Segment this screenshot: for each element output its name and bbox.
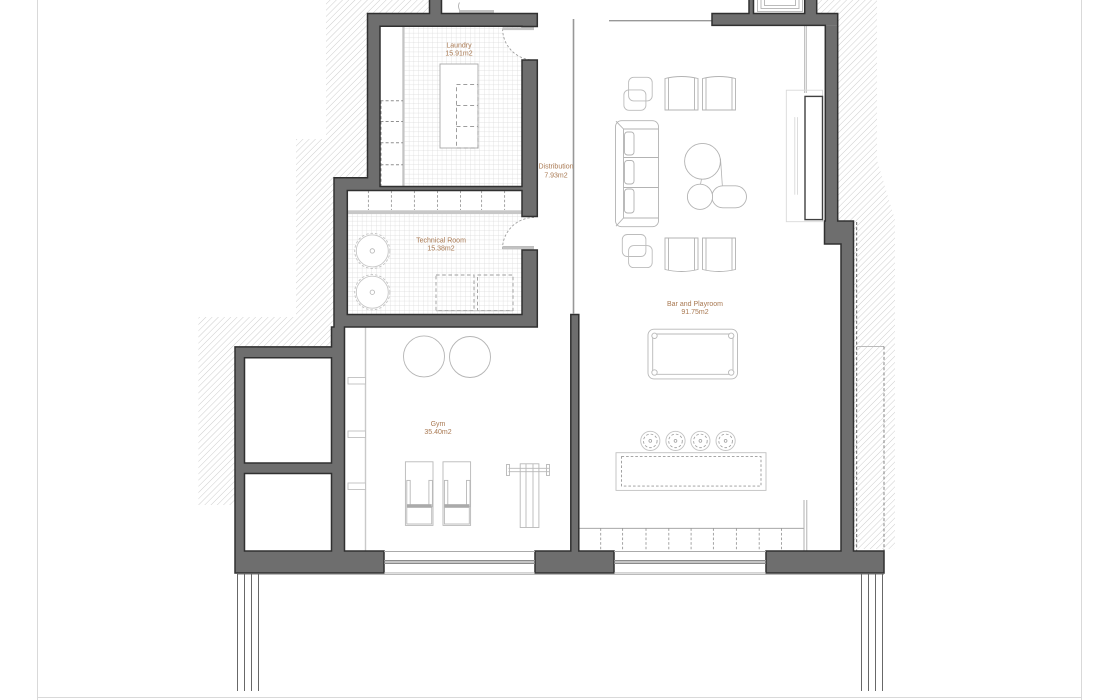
svg-text:Bar and Playroom: Bar and Playroom — [667, 301, 723, 308]
svg-text:15.91m2: 15.91m2 — [445, 51, 472, 58]
svg-text:Laundry: Laundry — [446, 43, 472, 50]
svg-text:35.40m2: 35.40m2 — [424, 429, 451, 436]
svg-text:91.75m2: 91.75m2 — [681, 309, 708, 316]
svg-text:7.93m2: 7.93m2 — [544, 173, 567, 180]
svg-text:15.38m2: 15.38m2 — [427, 246, 454, 253]
svg-text:Technical Room: Technical Room — [416, 238, 466, 245]
svg-text:Gym: Gym — [431, 421, 446, 428]
svg-text:Distribution: Distribution — [538, 164, 573, 171]
